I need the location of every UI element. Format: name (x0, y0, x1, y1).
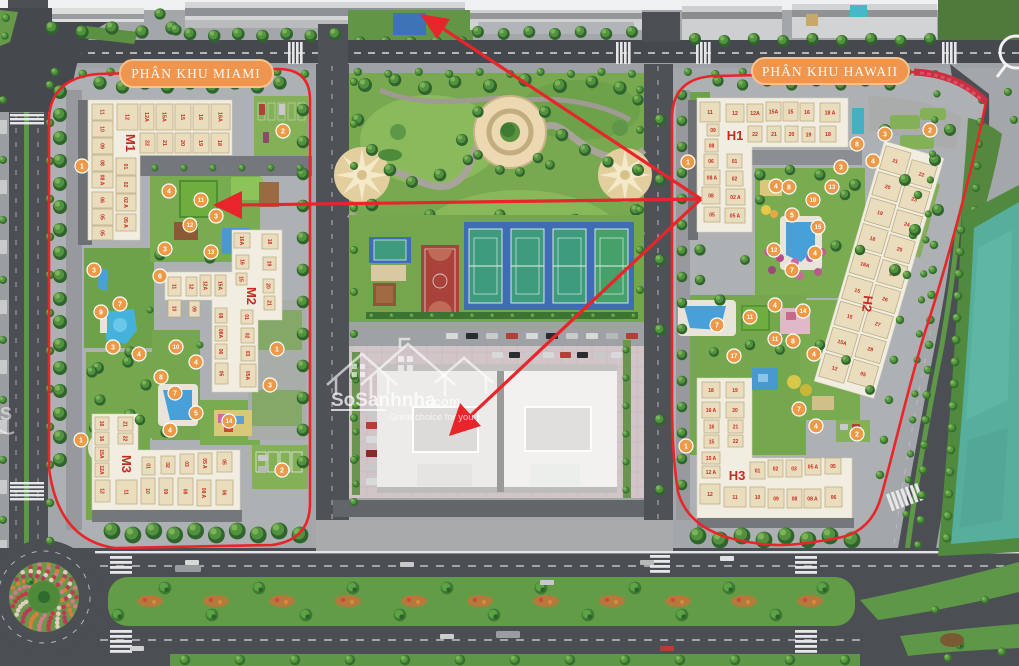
svg-text:4: 4 (773, 303, 777, 310)
svg-text:8: 8 (855, 142, 859, 149)
svg-text:1: 1 (79, 438, 83, 445)
svg-text:H1: H1 (727, 128, 744, 143)
svg-text:12: 12 (187, 223, 194, 229)
svg-text:20: 20 (179, 140, 185, 146)
svg-text:20: 20 (732, 408, 738, 414)
svg-text:.com: .com (430, 394, 460, 409)
svg-text:16A: 16A (238, 236, 244, 246)
svg-text:21: 21 (161, 140, 167, 146)
svg-text:2: 2 (855, 432, 859, 439)
svg-text:12A: 12A (98, 465, 104, 475)
svg-text:13: 13 (829, 185, 836, 191)
svg-text:3: 3 (268, 383, 272, 390)
svg-text:16 A: 16 A (706, 408, 717, 414)
svg-text:06: 06 (99, 197, 105, 203)
svg-text:1: 1 (80, 164, 84, 171)
svg-text:9: 9 (99, 310, 103, 317)
svg-text:22: 22 (122, 436, 128, 442)
svg-text:09: 09 (99, 143, 105, 149)
svg-text:4: 4 (813, 251, 817, 258)
svg-text:14: 14 (226, 419, 233, 425)
svg-text:15A: 15A (217, 281, 223, 291)
svg-text:S: S (0, 404, 12, 424)
svg-text:13: 13 (208, 250, 215, 256)
svg-text:6: 6 (158, 274, 162, 281)
svg-text:06: 06 (708, 159, 714, 165)
svg-text:10: 10 (99, 126, 105, 132)
svg-text:M1: M1 (123, 134, 138, 152)
svg-text:4: 4 (194, 360, 198, 367)
svg-text:05: 05 (218, 371, 224, 377)
svg-text:11: 11 (198, 198, 205, 204)
svg-text:11: 11 (123, 489, 129, 495)
svg-text:19: 19 (732, 388, 738, 394)
svg-text:05: 05 (99, 230, 105, 236)
svg-text:19: 19 (197, 140, 203, 146)
svg-text:7: 7 (118, 302, 122, 309)
svg-text:7: 7 (173, 391, 177, 398)
svg-text:11: 11 (707, 110, 713, 116)
svg-text:18 A: 18 A (825, 110, 836, 116)
svg-text:15: 15 (179, 114, 185, 120)
svg-text:16: 16 (98, 436, 104, 442)
svg-text:19: 19 (266, 261, 272, 267)
svg-text:20: 20 (789, 132, 795, 138)
svg-text:PHÂN KHU HAWAII: PHÂN KHU HAWAII (762, 64, 898, 79)
svg-text:12: 12 (732, 111, 738, 117)
svg-text:18: 18 (825, 132, 831, 138)
svg-text:05 A: 05 A (808, 464, 819, 470)
svg-text:15: 15 (238, 276, 244, 282)
svg-text:4: 4 (774, 184, 778, 191)
svg-text:8: 8 (791, 339, 795, 346)
svg-text:08: 08 (99, 160, 105, 166)
svg-text:8: 8 (159, 375, 163, 382)
svg-text:02: 02 (164, 462, 170, 468)
svg-text:3: 3 (92, 268, 96, 275)
svg-text:05 A: 05 A (201, 458, 207, 469)
svg-text:05 A: 05 A (122, 217, 128, 228)
svg-text:12A: 12A (202, 281, 208, 291)
svg-text:03: 03 (791, 466, 797, 472)
svg-text:12 A: 12 A (706, 470, 717, 476)
svg-text:06: 06 (831, 495, 837, 501)
svg-text:SoSanhnha: SoSanhnha (331, 390, 436, 411)
svg-text:PHÂN KHU MIAMI: PHÂN KHU MIAMI (131, 66, 261, 81)
svg-text:21: 21 (771, 132, 777, 138)
svg-text:10: 10 (810, 198, 817, 204)
svg-text:21: 21 (733, 424, 739, 430)
svg-text:4: 4 (814, 424, 818, 431)
svg-text:08 A: 08 A (707, 175, 718, 181)
svg-text:1: 1 (275, 347, 279, 354)
svg-text:11: 11 (171, 284, 177, 290)
svg-text:15A: 15A (98, 449, 104, 459)
svg-text:08: 08 (182, 489, 188, 495)
svg-text:09: 09 (191, 306, 197, 312)
svg-text:2: 2 (281, 129, 285, 136)
svg-text:11: 11 (747, 315, 754, 321)
svg-text:05A: 05A (244, 371, 250, 381)
svg-text:12: 12 (707, 492, 713, 498)
svg-text:8: 8 (787, 185, 791, 192)
svg-text:18: 18 (216, 140, 222, 146)
svg-text:3: 3 (111, 345, 115, 352)
svg-text:3: 3 (163, 247, 167, 254)
svg-text:08: 08 (708, 193, 714, 199)
svg-text:11: 11 (99, 109, 105, 115)
svg-text:01: 01 (122, 164, 128, 170)
svg-text:12: 12 (124, 114, 130, 120)
svg-text:02: 02 (732, 176, 738, 182)
svg-text:11: 11 (772, 337, 779, 343)
svg-text:02 A: 02 A (122, 197, 128, 208)
svg-text:4: 4 (137, 352, 141, 359)
svg-text:21: 21 (266, 300, 272, 306)
svg-text:01: 01 (145, 463, 151, 469)
svg-text:15A: 15A (769, 109, 779, 115)
svg-text:3: 3 (214, 214, 218, 221)
svg-text:08 A: 08 A (99, 175, 105, 186)
svg-text:08: 08 (217, 313, 223, 319)
svg-text:15: 15 (815, 225, 822, 231)
svg-text:08: 08 (792, 496, 798, 502)
svg-text:02: 02 (244, 333, 250, 339)
svg-text:08: 08 (709, 143, 715, 149)
svg-text:4: 4 (871, 159, 875, 166)
svg-text:22: 22 (144, 140, 150, 146)
svg-text:1: 1 (686, 160, 690, 167)
svg-text:7: 7 (715, 323, 719, 330)
svg-text:2: 2 (928, 128, 932, 135)
svg-text:01: 01 (732, 159, 738, 165)
svg-text:05: 05 (221, 459, 227, 465)
svg-text:10: 10 (173, 345, 180, 351)
svg-text:Great choice for you: Great choice for you (389, 411, 473, 422)
svg-text:5: 5 (194, 411, 198, 418)
svg-text:20: 20 (265, 283, 271, 289)
svg-text:08 A: 08 A (807, 496, 818, 502)
svg-text:H2: H2 (859, 295, 876, 313)
svg-text:22: 22 (733, 439, 739, 445)
svg-text:05: 05 (709, 212, 715, 218)
svg-text:08 A: 08 A (200, 488, 206, 499)
svg-text:15: 15 (709, 439, 715, 445)
svg-text:17: 17 (731, 354, 738, 360)
svg-text:7: 7 (790, 268, 794, 275)
svg-text:4: 4 (167, 189, 171, 196)
svg-text:5: 5 (790, 213, 794, 220)
svg-text:12: 12 (99, 488, 105, 494)
svg-text:05: 05 (830, 464, 836, 470)
svg-text:06: 06 (217, 349, 223, 355)
svg-text:15A: 15A (161, 112, 167, 122)
svg-text:14: 14 (800, 309, 807, 315)
svg-text:02: 02 (122, 182, 128, 188)
svg-text:4: 4 (812, 352, 816, 359)
svg-text:21: 21 (122, 421, 128, 427)
svg-text:H3: H3 (729, 468, 746, 483)
svg-text:09: 09 (162, 489, 168, 495)
svg-text:10: 10 (144, 488, 150, 494)
svg-text:09: 09 (773, 496, 779, 502)
svg-text:16: 16 (98, 421, 104, 427)
svg-text:10: 10 (755, 495, 761, 501)
svg-text:18: 18 (708, 388, 714, 394)
svg-text:3: 3 (883, 132, 887, 139)
svg-text:12A: 12A (750, 111, 760, 117)
svg-text:16: 16 (709, 424, 715, 430)
svg-text:12A: 12A (143, 112, 149, 122)
svg-text:16: 16 (197, 114, 203, 120)
svg-text:10: 10 (171, 306, 177, 312)
svg-text:12: 12 (771, 248, 778, 254)
svg-text:01: 01 (243, 314, 249, 320)
svg-text:1: 1 (684, 444, 688, 451)
svg-text:4: 4 (168, 428, 172, 435)
svg-text:M2: M2 (244, 287, 259, 305)
svg-text:15 A: 15 A (706, 456, 717, 462)
svg-text:M3: M3 (119, 455, 134, 473)
svg-text:12: 12 (188, 284, 194, 290)
svg-text:05: 05 (99, 214, 105, 220)
svg-text:16: 16 (804, 110, 810, 116)
svg-text:19: 19 (806, 132, 812, 138)
svg-text:01: 01 (755, 468, 761, 474)
svg-text:22: 22 (752, 132, 758, 138)
svg-text:7: 7 (797, 407, 801, 414)
svg-text:02: 02 (773, 466, 779, 472)
svg-text:2: 2 (280, 468, 284, 475)
svg-text:18: 18 (266, 239, 272, 245)
svg-text:03: 03 (183, 461, 189, 467)
svg-text:15: 15 (788, 109, 794, 115)
svg-text:11: 11 (732, 495, 738, 501)
svg-text:06: 06 (221, 490, 227, 496)
svg-text:16A: 16A (217, 112, 223, 122)
svg-text:03: 03 (244, 351, 250, 357)
svg-text:3: 3 (839, 165, 843, 172)
svg-text:16: 16 (239, 259, 245, 265)
svg-text:08A: 08A (217, 329, 223, 339)
svg-text:09: 09 (710, 128, 716, 134)
svg-text:02 A: 02 A (730, 195, 741, 201)
svg-text:05 A: 05 A (730, 213, 741, 219)
